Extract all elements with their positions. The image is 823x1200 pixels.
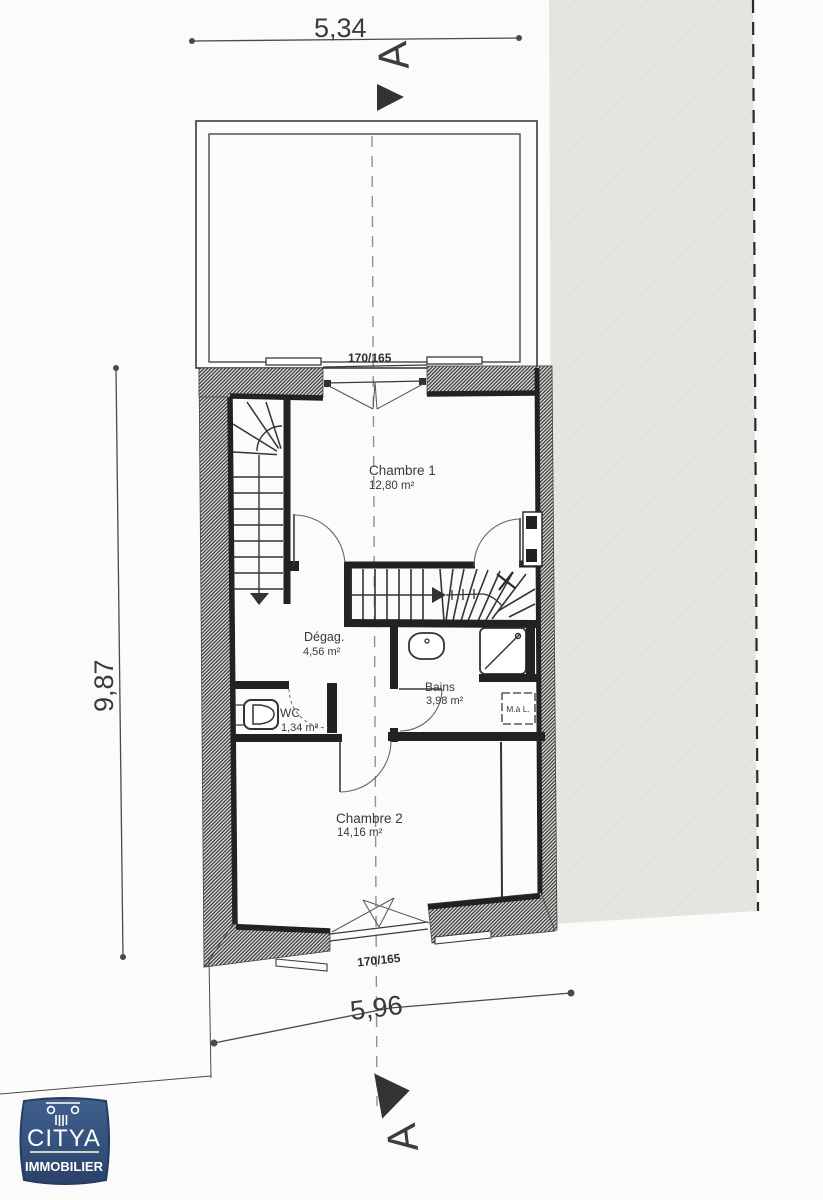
svg-text:3,98 m²: 3,98 m² [426,695,464,707]
svg-text:A: A [368,40,418,73]
svg-text:4,56 m²: 4,56 m² [303,646,341,658]
svg-text:IMMOBILIER: IMMOBILIER [25,1159,104,1174]
svg-text:5,96: 5,96 [348,990,404,1026]
svg-text:M.à L.: M.à L. [506,704,530,714]
svg-text:WC: WC [280,706,300,720]
svg-text:CITYA: CITYA [27,1125,101,1152]
svg-text:Chambre 1: Chambre 1 [369,463,436,478]
svg-text:Bains: Bains [425,680,455,694]
svg-text:Dégag.: Dégag. [304,630,344,644]
svg-text:9,87: 9,87 [89,659,119,712]
svg-text:170/165: 170/165 [357,951,402,969]
svg-text:1,34 m²: 1,34 m² [281,722,319,734]
svg-text:5,34: 5,34 [314,13,367,43]
svg-text:12,80 m²: 12,80 m² [369,480,415,492]
svg-text:170/165: 170/165 [348,351,392,365]
svg-text:A: A [377,1121,427,1155]
svg-text:Chambre 2: Chambre 2 [336,811,403,826]
svg-text:14,16 m²: 14,16 m² [337,827,383,839]
